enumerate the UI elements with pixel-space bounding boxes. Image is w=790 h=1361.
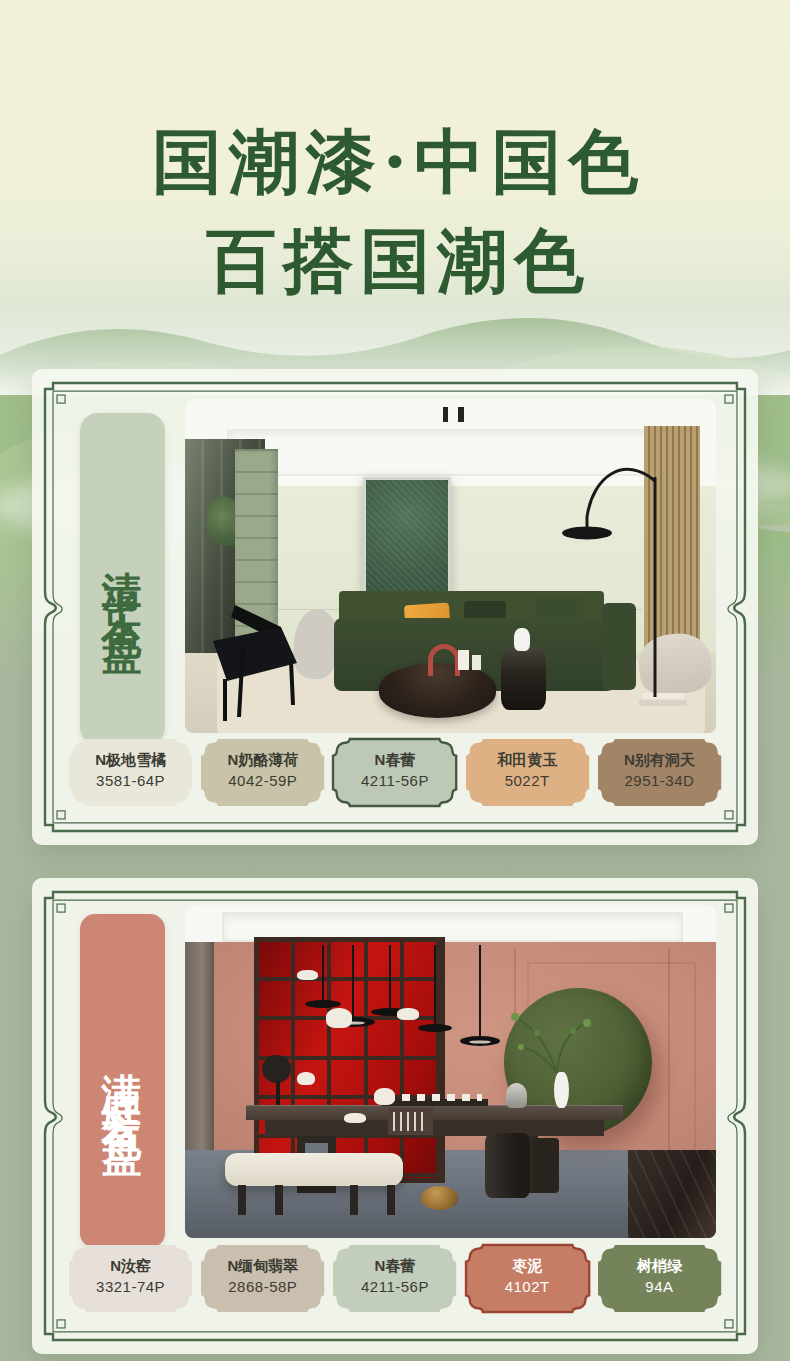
swatch-name: 枣泥 [466, 1256, 589, 1276]
color-swatch: 树梢绿 94A [598, 1245, 721, 1312]
palette-title-pill: 清平乐色盘 [80, 413, 165, 745]
palette-title-pill: 满庭芳色盘 [80, 914, 165, 1248]
ceramic-jar [297, 1072, 316, 1085]
swatch-code: 5022T [466, 770, 589, 791]
swatch-code: 2951-34D [598, 770, 721, 791]
ceramic-stack [297, 970, 318, 980]
ceramic-plate [344, 1113, 365, 1123]
swatch-name: N汝窑 [69, 1256, 192, 1276]
book-boxes [388, 1108, 433, 1135]
swatch-name: N极地雪橘 [69, 750, 192, 770]
swatch-code: 4211-56P [333, 1276, 456, 1297]
teapot [326, 1008, 353, 1028]
color-swatch: N春蕾 4211-56P [333, 1245, 456, 1312]
swatch-name: N春蕾 [333, 750, 456, 770]
pendant-lamps-and-plant [185, 905, 716, 1238]
title-line-1: 国潮漆·中国色 [0, 112, 790, 211]
swatch-code: 4211-56P [333, 770, 456, 791]
swatch-name: 树梢绿 [598, 1256, 721, 1276]
poster: 国潮漆·中国色 百搭国潮色 清平乐色盘 [0, 0, 790, 1361]
swatch-code: 3321-74P [69, 1276, 192, 1297]
swatch-code: 4042-59P [201, 770, 324, 791]
color-swatch: N奶酪薄荷 4042-59P [201, 739, 324, 806]
color-swatch: N缅甸翡翠 2868-58P [201, 1245, 324, 1312]
swatch-name: 和田黄玉 [466, 750, 589, 770]
swatch-code: 3581-64P [69, 770, 192, 791]
color-swatch: N汝窑 3321-74P [69, 1245, 192, 1312]
palette-title-text: 满庭芳色盘 [95, 1041, 150, 1121]
lamp-and-chair-lines [185, 399, 716, 733]
palette-card-mantingfang: 满庭芳色盘 [32, 878, 758, 1354]
color-swatch-featured: 枣泥 4102T [466, 1245, 589, 1312]
swatch-name: N春蕾 [333, 1256, 456, 1276]
palette-title-text: 清平乐色盘 [95, 539, 150, 619]
swatch-code: 94A [598, 1276, 721, 1297]
swatch-code: 4102T [466, 1276, 589, 1297]
palette-card-qingpingle: 清平乐色盘 [32, 369, 758, 845]
swatch-name: N缅甸翡翠 [201, 1256, 324, 1276]
ceramic-stack [397, 1008, 418, 1020]
color-swatch: N别有洞天 2951-34D [598, 739, 721, 806]
color-swatch: 和田黄玉 5022T [466, 739, 589, 806]
poster-title: 国潮漆·中国色 百搭国潮色 [0, 112, 790, 310]
teapot [374, 1088, 395, 1105]
swatch-row: N汝窑 3321-74P N缅甸翡翠 2868-58P N春蕾 4211-56P… [69, 1245, 721, 1312]
swatch-name: N奶酪薄荷 [201, 750, 324, 770]
swatch-code: 2868-58P [201, 1276, 324, 1297]
color-swatch: N极地雪橘 3581-64P [69, 739, 192, 806]
swatch-name: N别有洞天 [598, 750, 721, 770]
title-line-2: 百搭国潮色 [0, 211, 790, 310]
swatch-row: N极地雪橘 3581-64P N奶酪薄荷 4042-59P N春蕾 4211-5… [69, 739, 721, 806]
color-swatch-featured: N春蕾 4211-56P [333, 739, 456, 806]
tea-room-photo [185, 905, 716, 1238]
living-room-photo [185, 399, 716, 733]
